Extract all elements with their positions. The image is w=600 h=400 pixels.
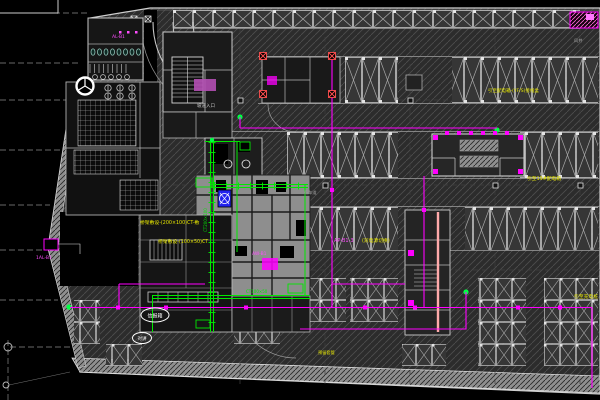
panel-label-3: AP-B1-3 xyxy=(334,238,354,244)
lane-label: 行车道 xyxy=(304,189,317,196)
note-right-mid: 引至19#配电箱 xyxy=(527,175,561,182)
note-tray-main: 桥架敷设-(200×100)CT-敷 xyxy=(140,219,200,226)
lower-strip-rooms xyxy=(232,296,310,332)
panel-label-4: 1AL-B1 xyxy=(36,255,52,261)
mailbox-row xyxy=(148,292,218,302)
shaft-label: 风井 xyxy=(574,37,582,44)
left-room-block xyxy=(66,78,160,216)
ramp-magenta-blob xyxy=(194,79,216,91)
utility-strip xyxy=(405,210,450,335)
panel-box-magenta xyxy=(262,258,278,270)
note-sleeve: 预留套管 xyxy=(318,349,335,356)
note-tray-sub: 桥架敷设-(100×50)CT xyxy=(158,238,208,245)
generator-room xyxy=(432,134,524,176)
restroom-block xyxy=(88,18,143,80)
tray-size-label-1: CT200×100 xyxy=(203,208,208,232)
fan-symbol-icon xyxy=(77,78,94,95)
roof-vent-box xyxy=(570,12,598,28)
cloud-2-label: 对讲 xyxy=(138,335,147,342)
panel-label-2: AW-B1 xyxy=(252,251,267,257)
cloud-1-label: 信报箱 xyxy=(147,313,162,320)
cad-canvas[interactable]: 信报箱 对讲 桥架敷设-(200×100)CT-敷 桥架敷设-(100×50)C… xyxy=(0,0,600,400)
ramp-label: 坡道入口 xyxy=(197,102,215,109)
cad-stage: 信报箱 对讲 桥架敷设-(200×100)CT-敷 桥架敷设-(100×50)C… xyxy=(0,0,600,400)
tray-size-label-2: CT100×50 xyxy=(246,289,268,294)
note-top-right: 引至配电箱-(YF/S)接线盒 xyxy=(488,87,539,94)
note-bottom-right: 引至充电桩 xyxy=(574,293,598,300)
note-dual-supply: (双电源切换) xyxy=(362,237,390,244)
panel-label-1: AL-B1 xyxy=(112,34,125,40)
ramp-lobby xyxy=(163,32,232,112)
elevator xyxy=(218,190,231,207)
